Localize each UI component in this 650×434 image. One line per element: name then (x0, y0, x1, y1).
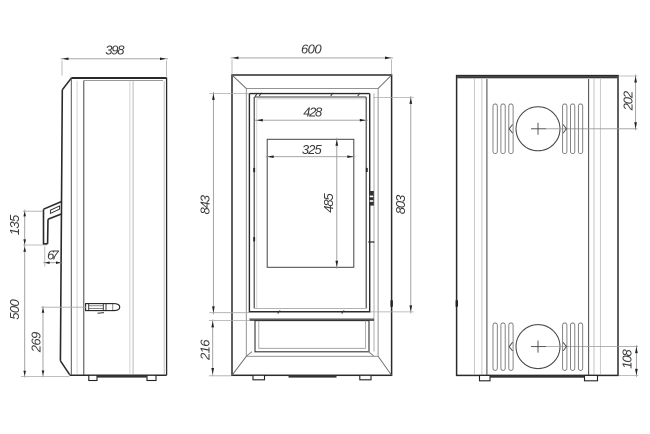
svg-text:216: 216 (197, 339, 212, 361)
svg-text:67: 67 (47, 248, 59, 263)
svg-text:428: 428 (303, 105, 323, 120)
svg-text:135: 135 (7, 214, 22, 235)
svg-text:803: 803 (393, 194, 408, 214)
svg-text:108: 108 (620, 348, 635, 368)
svg-text:500: 500 (7, 298, 22, 319)
svg-text:398: 398 (105, 42, 125, 57)
svg-text:269: 269 (28, 332, 43, 354)
svg-text:202: 202 (620, 90, 635, 111)
svg-text:600: 600 (301, 41, 322, 56)
svg-text:843: 843 (197, 194, 212, 214)
svg-text:485: 485 (321, 192, 336, 212)
svg-text:325: 325 (302, 142, 323, 157)
